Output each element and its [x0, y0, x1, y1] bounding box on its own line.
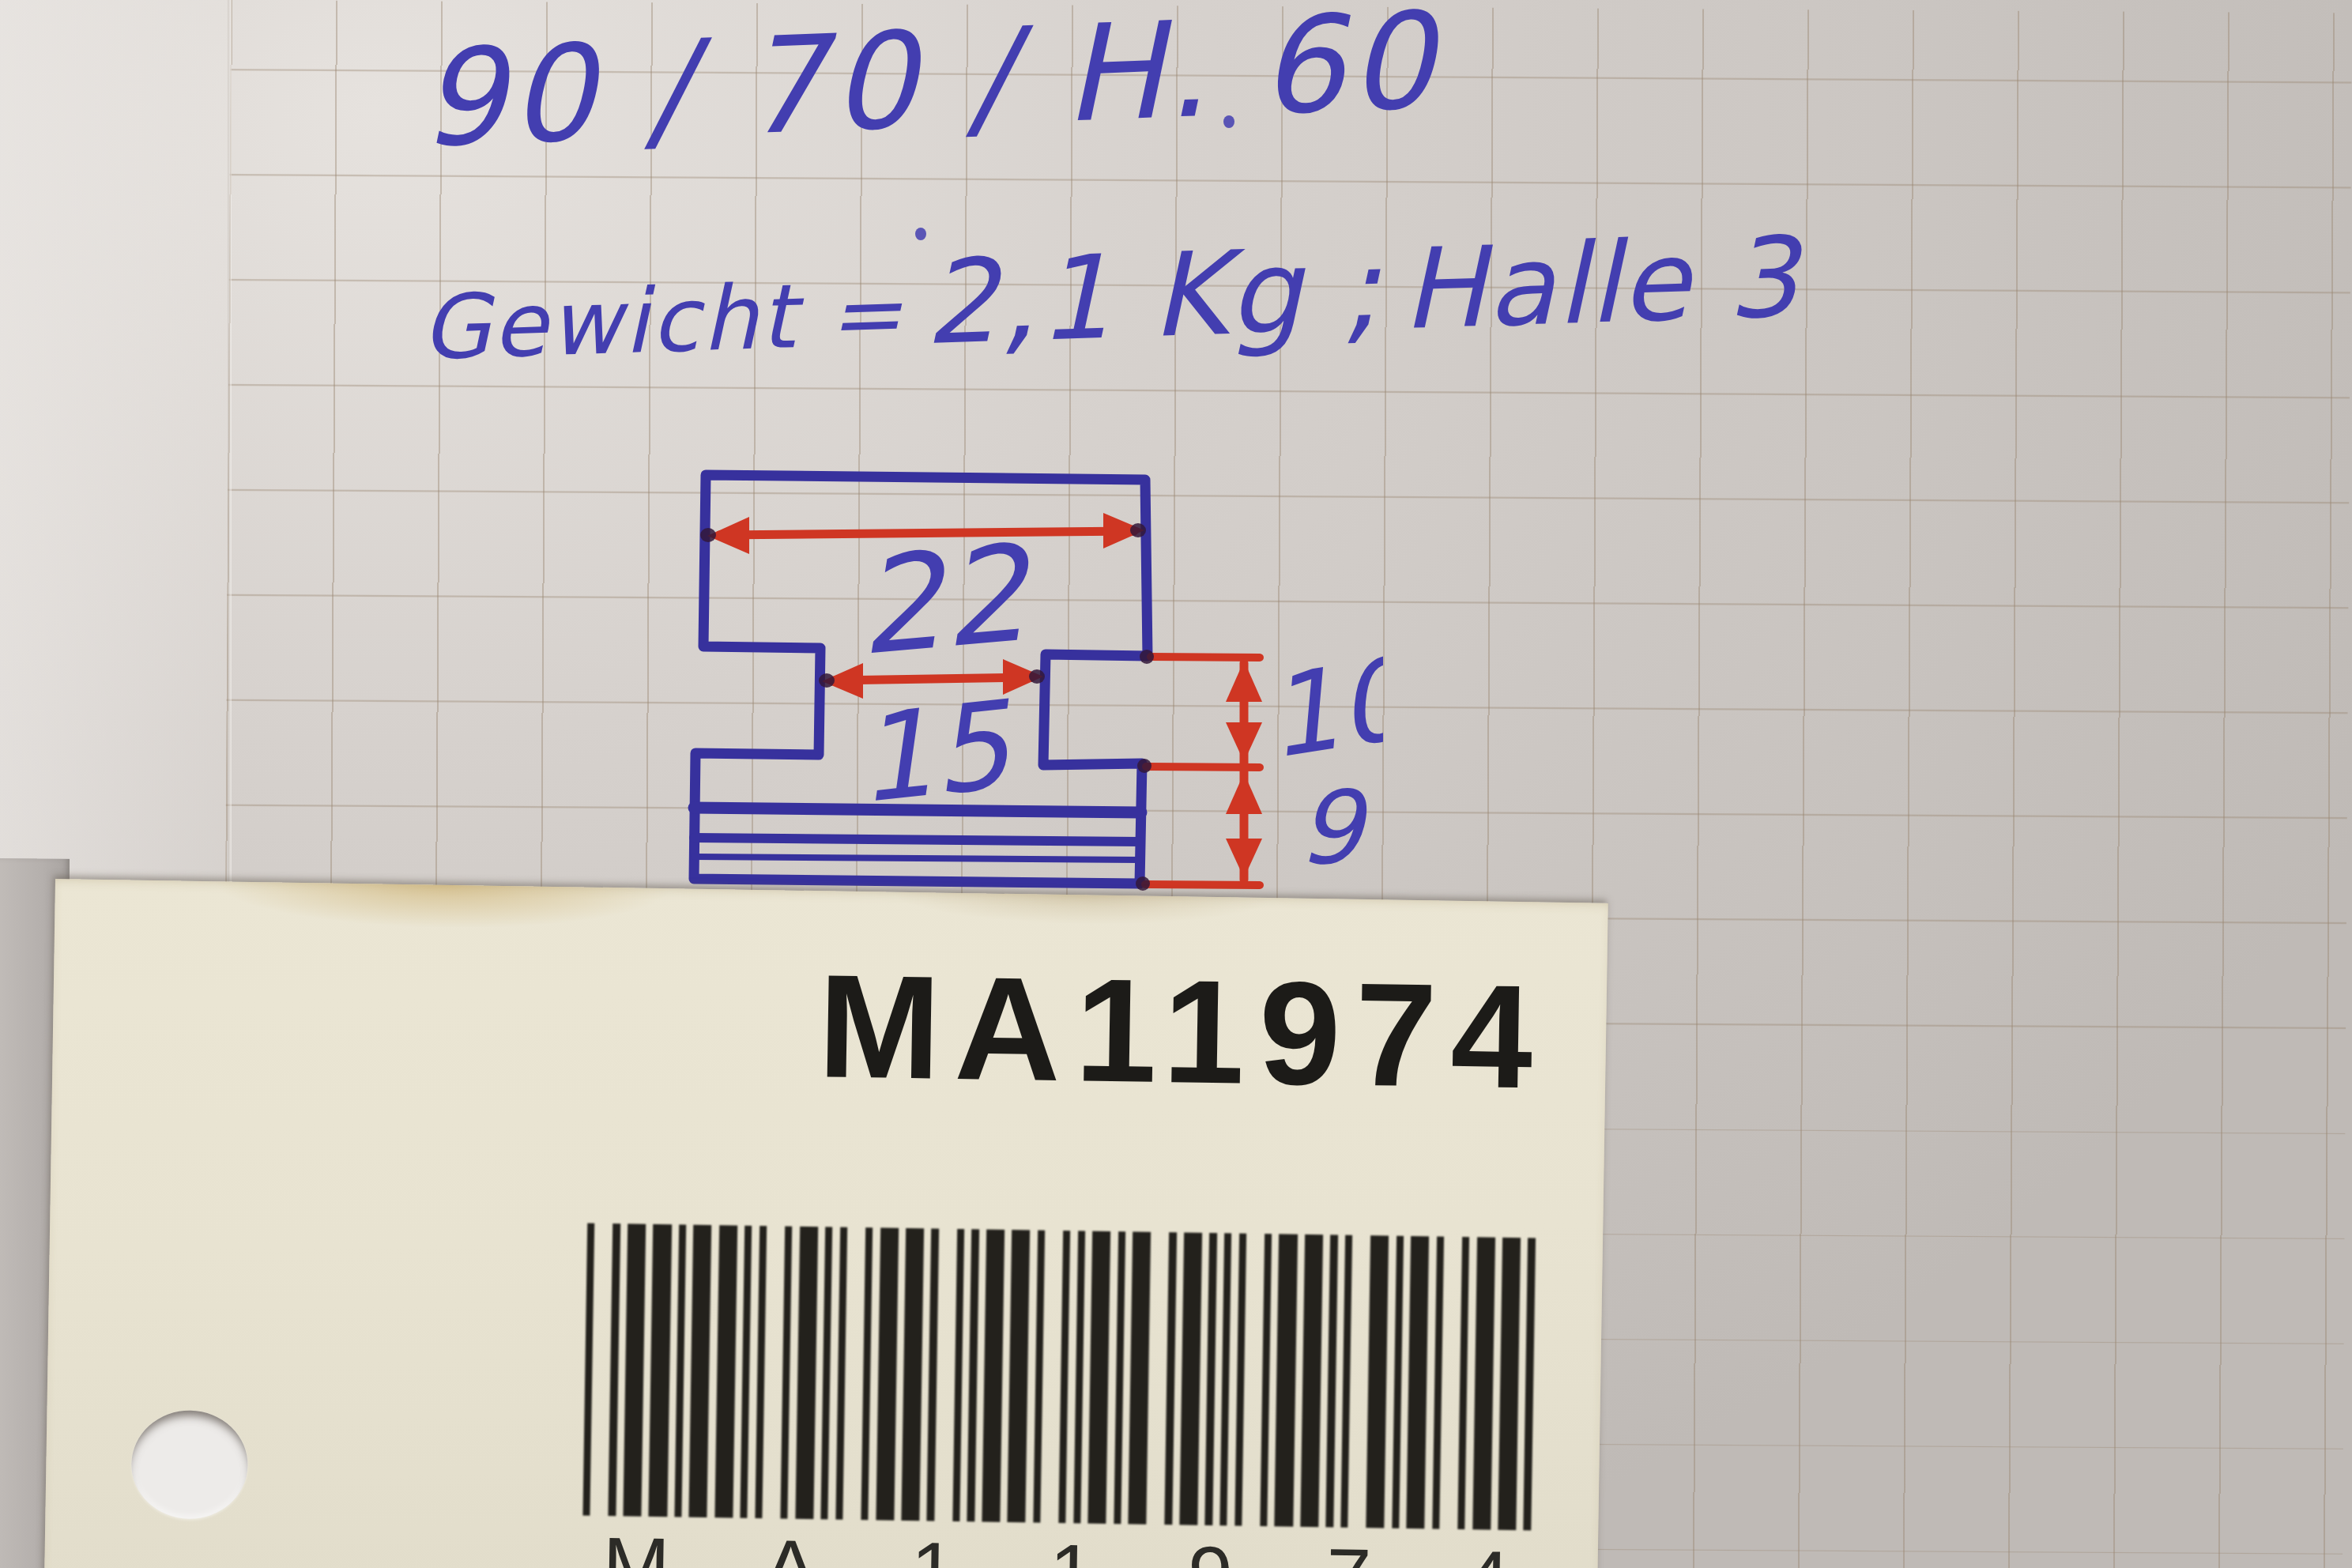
barcode-char: 4: [1464, 1533, 1511, 1568]
ink-junction-dot: [1029, 669, 1045, 684]
tag-stain: [189, 881, 695, 946]
hall-location: Halle 3: [1400, 213, 1800, 354]
dim-label-top-width: 22: [851, 515, 1040, 685]
ink-junction-dot: [819, 673, 835, 688]
ink-junction-dot: [1130, 523, 1146, 537]
extension-line-3: [1145, 884, 1260, 885]
photo-of-note-and-tag: { "note": { "line1": "90 / 70 / H. 60", …: [0, 0, 2352, 1568]
dim-label-neck-width: 15: [850, 675, 1021, 831]
barcode-char: 7: [1325, 1531, 1372, 1568]
ink-junction-dot: [700, 528, 716, 542]
arrowhead-down-icon: [1226, 839, 1262, 878]
part-tag: MA11974 MA11974: [43, 879, 1608, 1568]
weight-value: 2,1 Kg ;: [922, 221, 1384, 370]
barcode-char: 9: [1187, 1529, 1234, 1568]
ink-dot: [1223, 115, 1234, 128]
arrowhead-up-icon: [1226, 661, 1262, 702]
dim-label-upper-height: 10: [1257, 631, 1383, 784]
barcode-char: 1: [910, 1525, 957, 1568]
barcode-char: 1: [1049, 1527, 1095, 1568]
tag-code: MA11974: [817, 941, 1548, 1121]
punch-hole: [130, 1410, 248, 1520]
arrowhead-down-icon: [1226, 722, 1262, 762]
base-line-2: [694, 838, 1140, 842]
ink-junction-dot: [1140, 650, 1154, 664]
extension-line-1: [1151, 657, 1260, 658]
base-line-3: [695, 857, 1140, 860]
ink-dot: [915, 228, 926, 240]
arrowhead-up-icon: [1226, 773, 1262, 814]
barcode-char: A: [763, 1522, 818, 1568]
ink-junction-dot: [1137, 759, 1151, 773]
ink-junction-dot: [1136, 876, 1150, 891]
barcode: [582, 1223, 1536, 1531]
weight-label: Gewicht =: [420, 262, 906, 379]
tag-stain: [884, 891, 1280, 934]
barcode-char: M: [602, 1520, 671, 1568]
dim-label-lower-height: 9: [1298, 769, 1369, 887]
